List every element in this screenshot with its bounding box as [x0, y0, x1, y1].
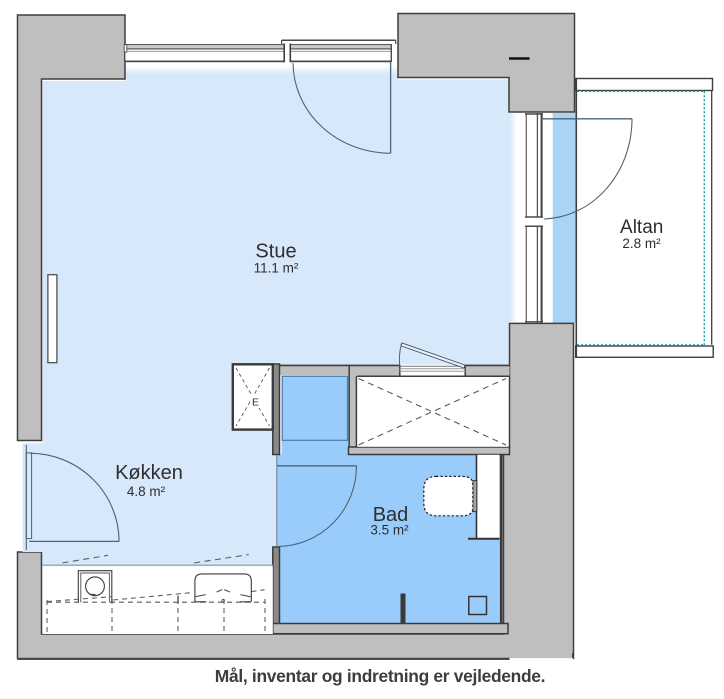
- svg-text:4.8 m²: 4.8 m²: [127, 484, 166, 499]
- svg-text:3.5 m²: 3.5 m²: [370, 523, 409, 538]
- svg-text:Mål, inventar og indretning er: Mål, inventar og indretning er vejledend…: [215, 666, 545, 686]
- svg-text:11.1 m²: 11.1 m²: [254, 261, 299, 276]
- svg-text:E: E: [252, 397, 259, 409]
- svg-text:Altan: Altan: [620, 217, 663, 238]
- svg-text:Køkken: Køkken: [115, 462, 183, 484]
- svg-text:Stue: Stue: [255, 241, 296, 263]
- svg-text:2.8 m²: 2.8 m²: [622, 236, 661, 251]
